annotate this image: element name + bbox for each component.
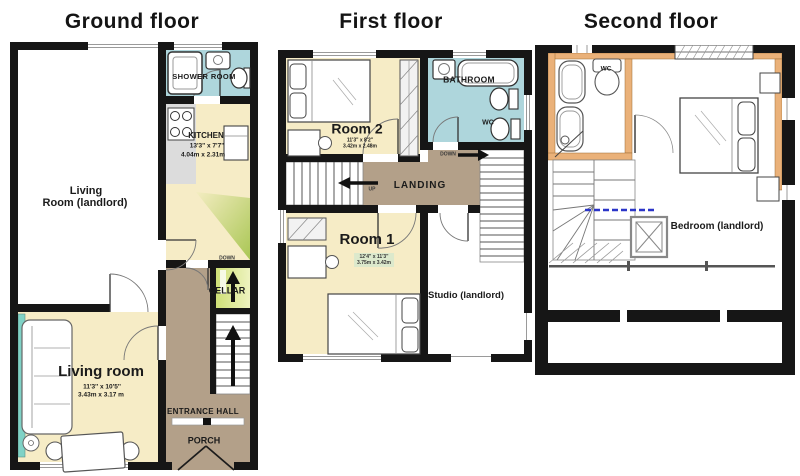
living-room-label: Living room [58, 364, 144, 380]
living-room-landlord-label-line2: Room (landlord) [43, 198, 128, 210]
room2-label: Room 2 [331, 122, 382, 137]
living-room-landlord-label-line1: Living [70, 186, 102, 198]
studio-label: Studio (landlord) [428, 291, 504, 301]
room1-wardrobe-icon [288, 218, 326, 240]
first-up-label: UP [369, 187, 376, 192]
second-bathtub2-icon [557, 107, 583, 151]
room1-bed-icon [328, 294, 420, 354]
room1-dims-m-label: 3.75m x 3.42m [357, 260, 391, 266]
second-bed-icon [680, 98, 758, 173]
kitchen-label: KITCHEN [188, 132, 224, 140]
shower-room-label: SHOWER ROOM [172, 73, 236, 81]
second-wc-icon [593, 59, 621, 95]
floorplan-page: Ground floor First floor Second floor [0, 0, 800, 476]
stairs-down-right [480, 150, 524, 262]
basin-icon [206, 52, 230, 69]
fridge-icon [224, 126, 248, 160]
first-floor-title: First floor [339, 10, 443, 34]
room2-dims-m-label: 3.42m x 2.48m [343, 144, 377, 149]
entrance-hall-label: ENTRANCE HALL [167, 408, 239, 416]
ground-floor-title: Ground floor [65, 10, 199, 34]
bathroom-label: BATHROOM [443, 76, 495, 85]
porch-label: PORCH [188, 436, 221, 445]
second-bathtub-icon [559, 61, 585, 103]
room2-bed-icon [288, 60, 370, 122]
living-room-dims-m-label: 3.43m x 3.17 m [78, 393, 124, 400]
side-table-icon [23, 435, 39, 451]
room1-dims-box: 12'4" x 11'3" 3.75m x 3.42m [354, 253, 394, 267]
living-room-dims-ft-label: 11'3'' x 10'5'' [83, 385, 121, 392]
cellar-down-label: DOWN [219, 256, 235, 261]
hall-stairs [216, 314, 250, 394]
second-floor-title: Second floor [584, 10, 718, 34]
second-floor-plan [535, 45, 795, 376]
kitchen-dims-m-label: 4.04m x 2.31m [181, 153, 225, 160]
kitchen-dims-ft-label: 13'3" x 7'7" [190, 144, 225, 151]
rooflight-window [675, 45, 753, 59]
first-down-label: DOWN [440, 152, 456, 157]
bedroom-landlord-label: Bedroom (landlord) [671, 222, 764, 233]
room2-wardrobe-icon [400, 60, 418, 156]
first-wc-label: WC [482, 119, 494, 126]
second-wc-label: WC [601, 67, 612, 74]
landing-label: LANDING [394, 181, 447, 192]
skylight-icon [631, 217, 667, 257]
first-floor-plan [278, 50, 532, 362]
room1-label: Room 1 [339, 232, 394, 248]
cellar-label: CELLAR [209, 286, 246, 295]
